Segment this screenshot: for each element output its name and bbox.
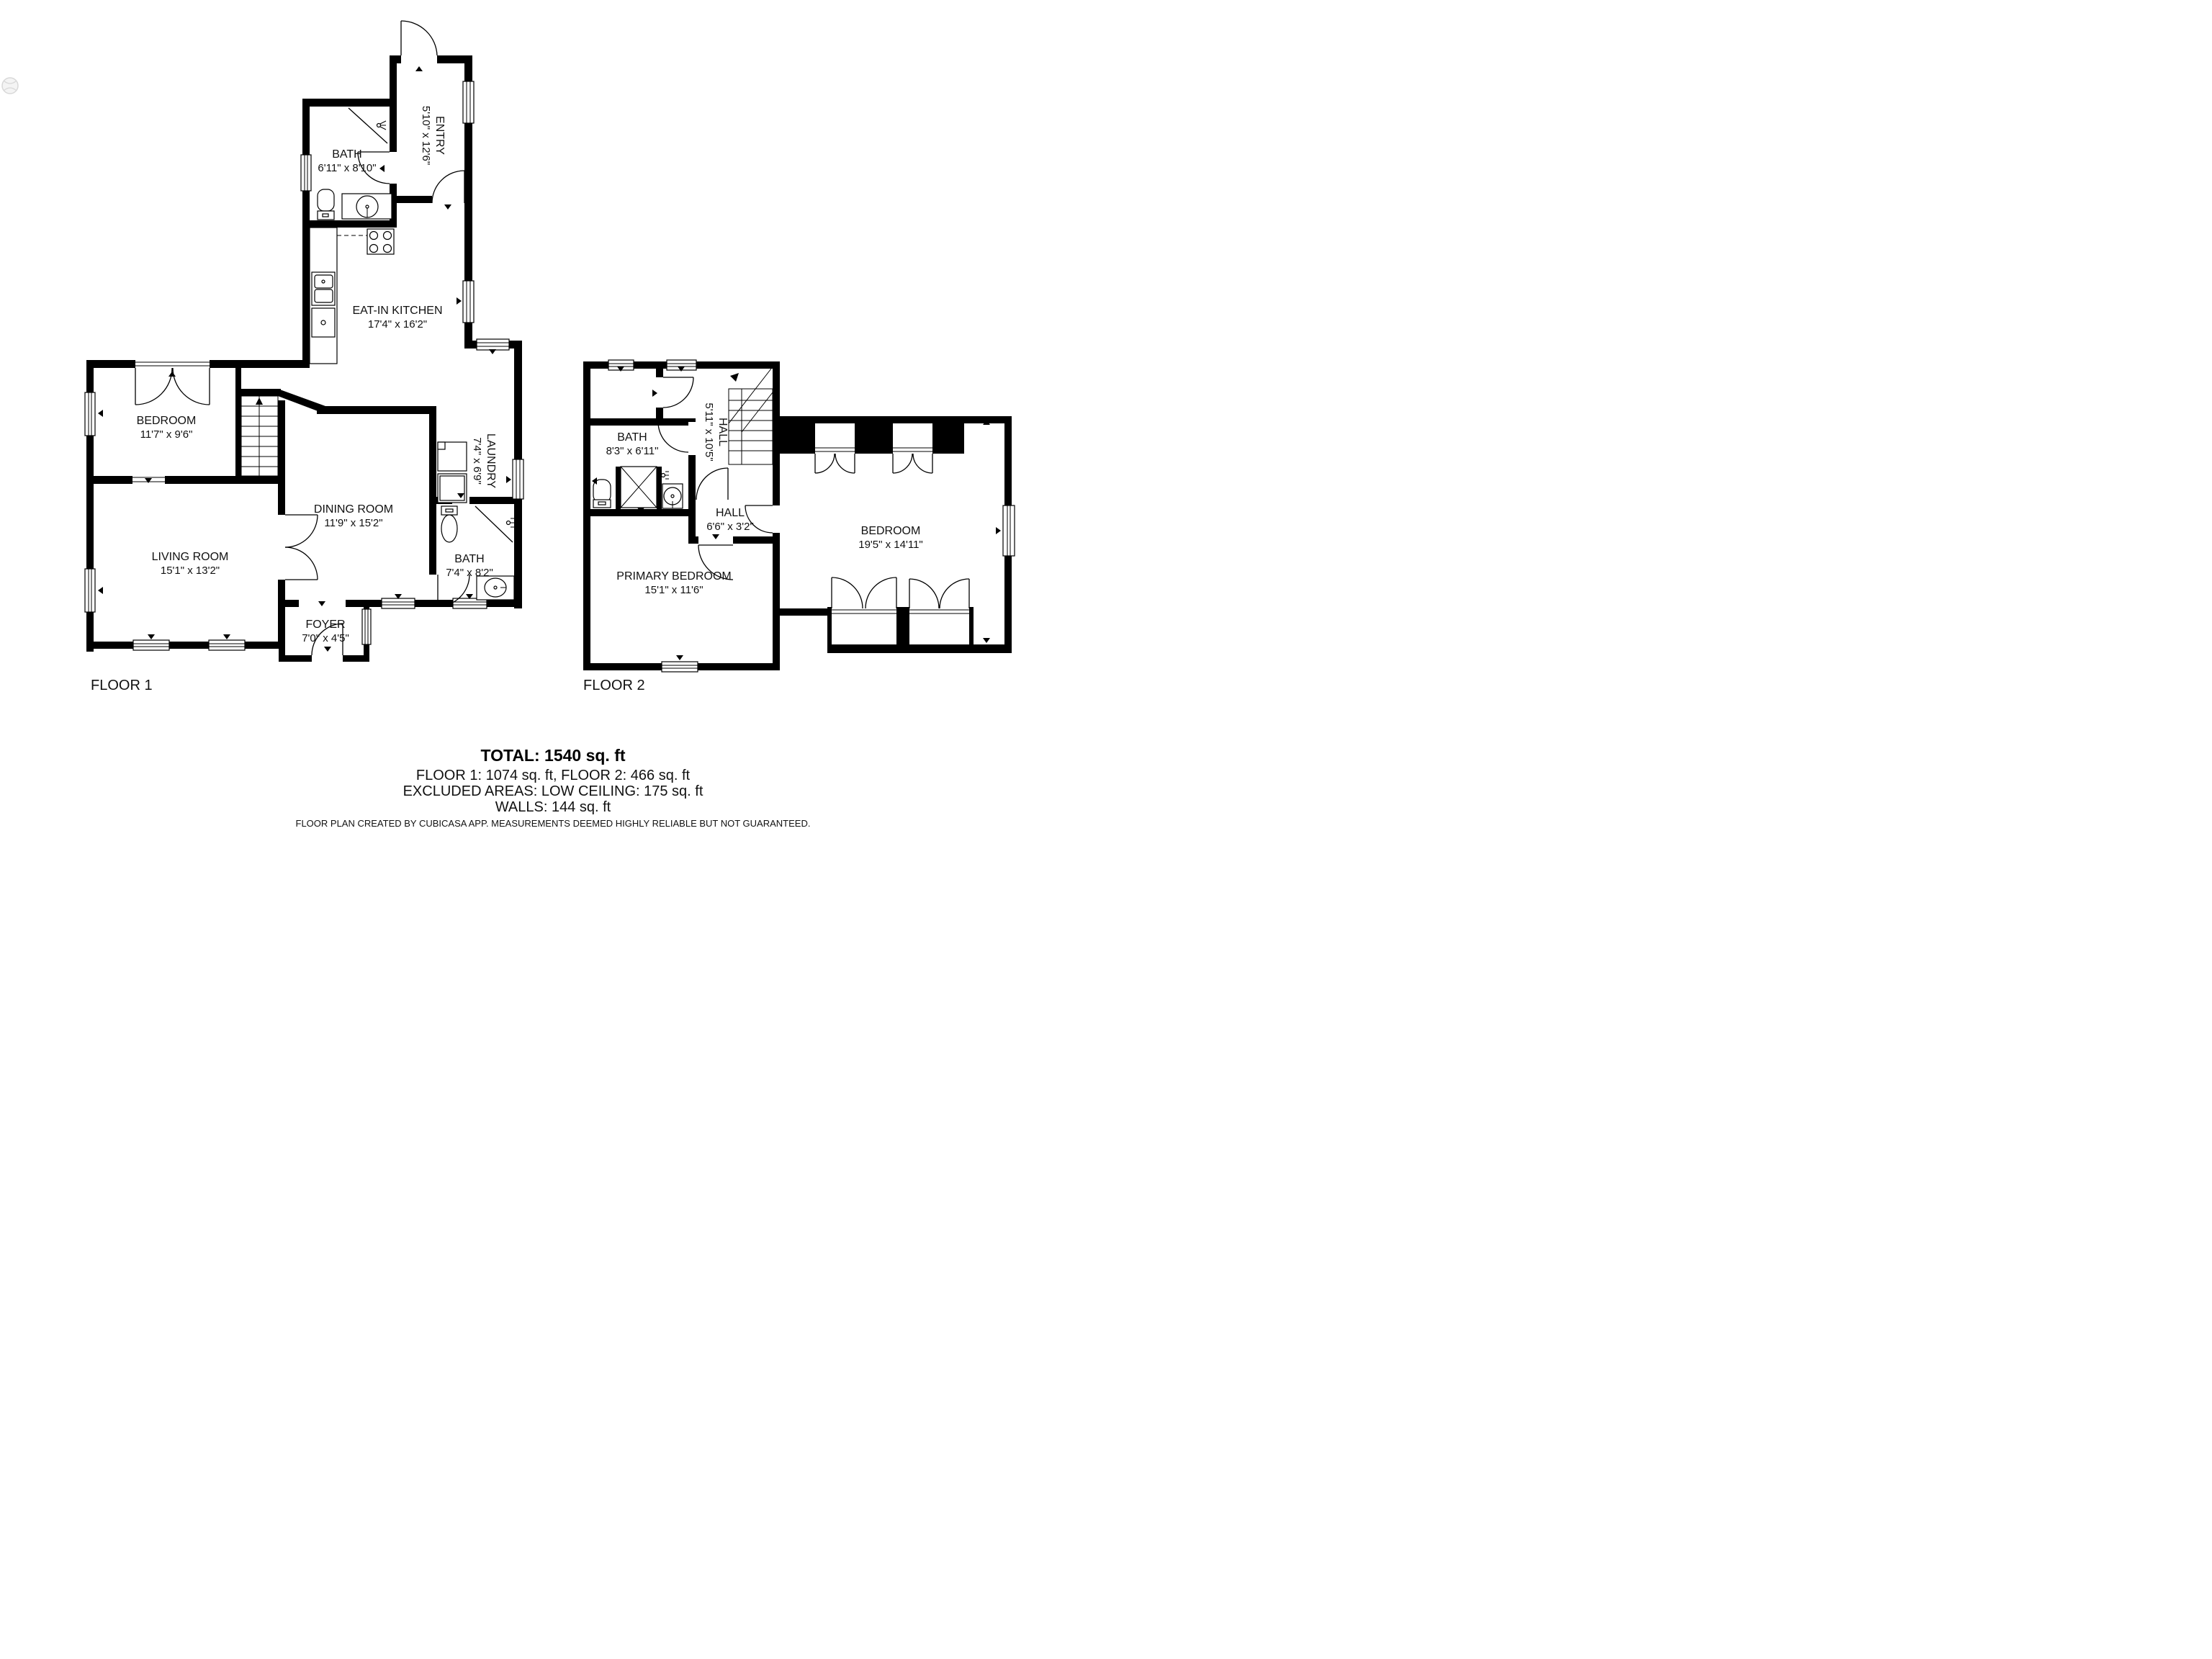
svg-text:BEDROOM: BEDROOM [861,525,921,537]
top-room-door [663,377,693,408]
walls-area-text: WALLS: 144 sq. ft [495,799,611,815]
bath2-fixtures [593,467,683,509]
svg-text:7'0" x 4'5": 7'0" x 4'5" [302,632,349,644]
room-label-kitchen: EAT-IN KITCHEN 17'4" x 16'2" [352,305,442,331]
svg-text:17'4" x 16'2": 17'4" x 16'2" [368,318,427,331]
shower [621,467,657,508]
stove [367,229,394,254]
washer [438,442,467,471]
window [301,155,311,191]
stairs-up-arrow [256,397,263,405]
window [362,609,371,644]
window [382,598,415,608]
summary-block: TOTAL: 1540 sq. ft FLOOR 1: 1074 sq. ft,… [403,746,703,815]
shower-head-icon [377,121,387,130]
window [209,640,245,650]
svg-text:PRIMARY BEDROOM: PRIMARY BEDROOM [616,570,731,583]
window [463,281,474,323]
room-label-bath-lower: BATH 7'4" x 8'2" [446,553,493,579]
svg-text:7'4" x 8'2": 7'4" x 8'2" [446,567,493,579]
svg-text:7'4" x 6'9": 7'4" x 6'9" [471,437,483,485]
cubicasa-watermark-icon [2,78,18,94]
svg-text:BATH: BATH [617,431,647,444]
window [85,569,95,612]
room-label-living: LIVING ROOM 15'1" x 13'2" [152,551,229,577]
room-label-bedroom: BEDROOM 11'7" x 9'6" [137,415,197,441]
room-label-bedroom2: BEDROOM 19'5" x 14'11" [858,525,923,551]
svg-text:11'7" x 9'6": 11'7" x 9'6" [140,428,193,441]
svg-text:ENTRY: ENTRY [433,116,446,155]
room-label-primary: PRIMARY BEDROOM 15'1" x 11'6" [616,570,731,596]
room-label-hall-small: HALL 6'6" x 3'2" [706,507,754,533]
window [1003,505,1015,556]
room-label-dining: DINING ROOM 11'9" x 15'2" [314,503,393,529]
room-label-hall-stair: HALL 5'11" x 10'5" [703,403,729,461]
floor1-room-labels: ENTRY 5'10" x 12'6" BATH 6'11" x 8'10" E… [137,106,497,644]
room-label-laundry: LAUNDRY 7'4" x 6'9" [471,433,497,489]
entry-kitchen-door [432,171,464,203]
svg-text:6'11" x 8'10": 6'11" x 8'10" [318,162,376,174]
dryer [438,474,467,503]
shower-head-icon [507,518,515,527]
dining-french-doors [285,515,318,580]
svg-text:EAT-IN KITCHEN: EAT-IN KITCHEN [352,305,442,317]
floor2-label: FLOOR 2 [583,678,645,693]
kitchen-sink [312,272,335,305]
window [662,662,698,672]
staircase-floor1 [241,396,278,476]
svg-text:HALL: HALL [716,507,745,519]
shower-faucet-icon [662,472,670,479]
floor2-walls [583,361,1012,670]
vanity-sink [342,194,392,219]
svg-text:5'10" x 12'6": 5'10" x 12'6" [420,106,432,165]
svg-text:5'11" x 10'5": 5'11" x 10'5" [703,403,715,461]
pedestal-sink [662,484,683,508]
room-label-foyer: FOYER 7'0" x 4'5" [302,619,349,644]
svg-text:BATH: BATH [332,148,361,161]
window [463,81,474,123]
entry-exterior-door [401,21,437,55]
staircase-floor2 [729,369,773,464]
svg-text:6'6" x 3'2": 6'6" x 3'2" [706,521,754,533]
svg-text:DINING ROOM: DINING ROOM [314,503,393,516]
window [133,640,169,650]
svg-text:8'3" x 6'11": 8'3" x 6'11" [606,445,659,457]
svg-text:LAUNDRY: LAUNDRY [485,433,497,489]
window [477,339,509,350]
vanity-sink [477,576,514,600]
bath2-door [658,422,688,452]
svg-text:11'9" x 15'2": 11'9" x 15'2" [324,517,382,529]
floor1-plan: ENTRY 5'10" x 12'6" BATH 6'11" x 8'10" E… [85,21,523,693]
svg-text:15'1" x 13'2": 15'1" x 13'2" [161,565,220,577]
floor-plan-canvas: ENTRY 5'10" x 12'6" BATH 6'11" x 8'10" E… [0,0,1106,829]
floor-plan-page: ENTRY 5'10" x 12'6" BATH 6'11" x 8'10" E… [0,0,1106,829]
svg-text:19'5" x 14'11": 19'5" x 14'11" [858,539,923,551]
footer-disclaimer: FLOOR PLAN CREATED BY CUBICASA APP. MEAS… [296,818,811,829]
svg-text:LIVING ROOM: LIVING ROOM [152,551,229,563]
toilet [318,189,334,220]
window [85,392,95,436]
excluded-areas-text: EXCLUDED AREAS: LOW CEILING: 175 sq. ft [403,783,703,799]
window [513,459,523,499]
svg-text:HALL: HALL [716,418,729,446]
total-area-text: TOTAL: 1540 sq. ft [480,746,625,765]
svg-text:15'1" x 11'6": 15'1" x 11'6" [644,584,703,596]
stairs-up-arrow [730,373,739,382]
bedroom-double-door [135,362,210,405]
svg-text:BEDROOM: BEDROOM [137,415,197,427]
dishwasher [312,308,335,337]
kitchen-fixtures [310,228,394,364]
toilet [441,506,457,542]
floor-areas-text: FLOOR 1: 1074 sq. ft, FLOOR 2: 466 sq. f… [416,768,691,783]
svg-text:BATH: BATH [454,553,484,565]
floor1-label: FLOOR 1 [91,678,153,693]
svg-text:FOYER: FOYER [305,619,345,631]
stair-hall-door [696,468,728,500]
room-label-bath2: BATH 8'3" x 6'11" [606,431,659,457]
room-label-entry: ENTRY 5'10" x 12'6" [420,106,446,165]
floor2-plan: BATH 8'3" x 6'11" HALL 5'11" x 10'5" HAL… [583,360,1015,693]
